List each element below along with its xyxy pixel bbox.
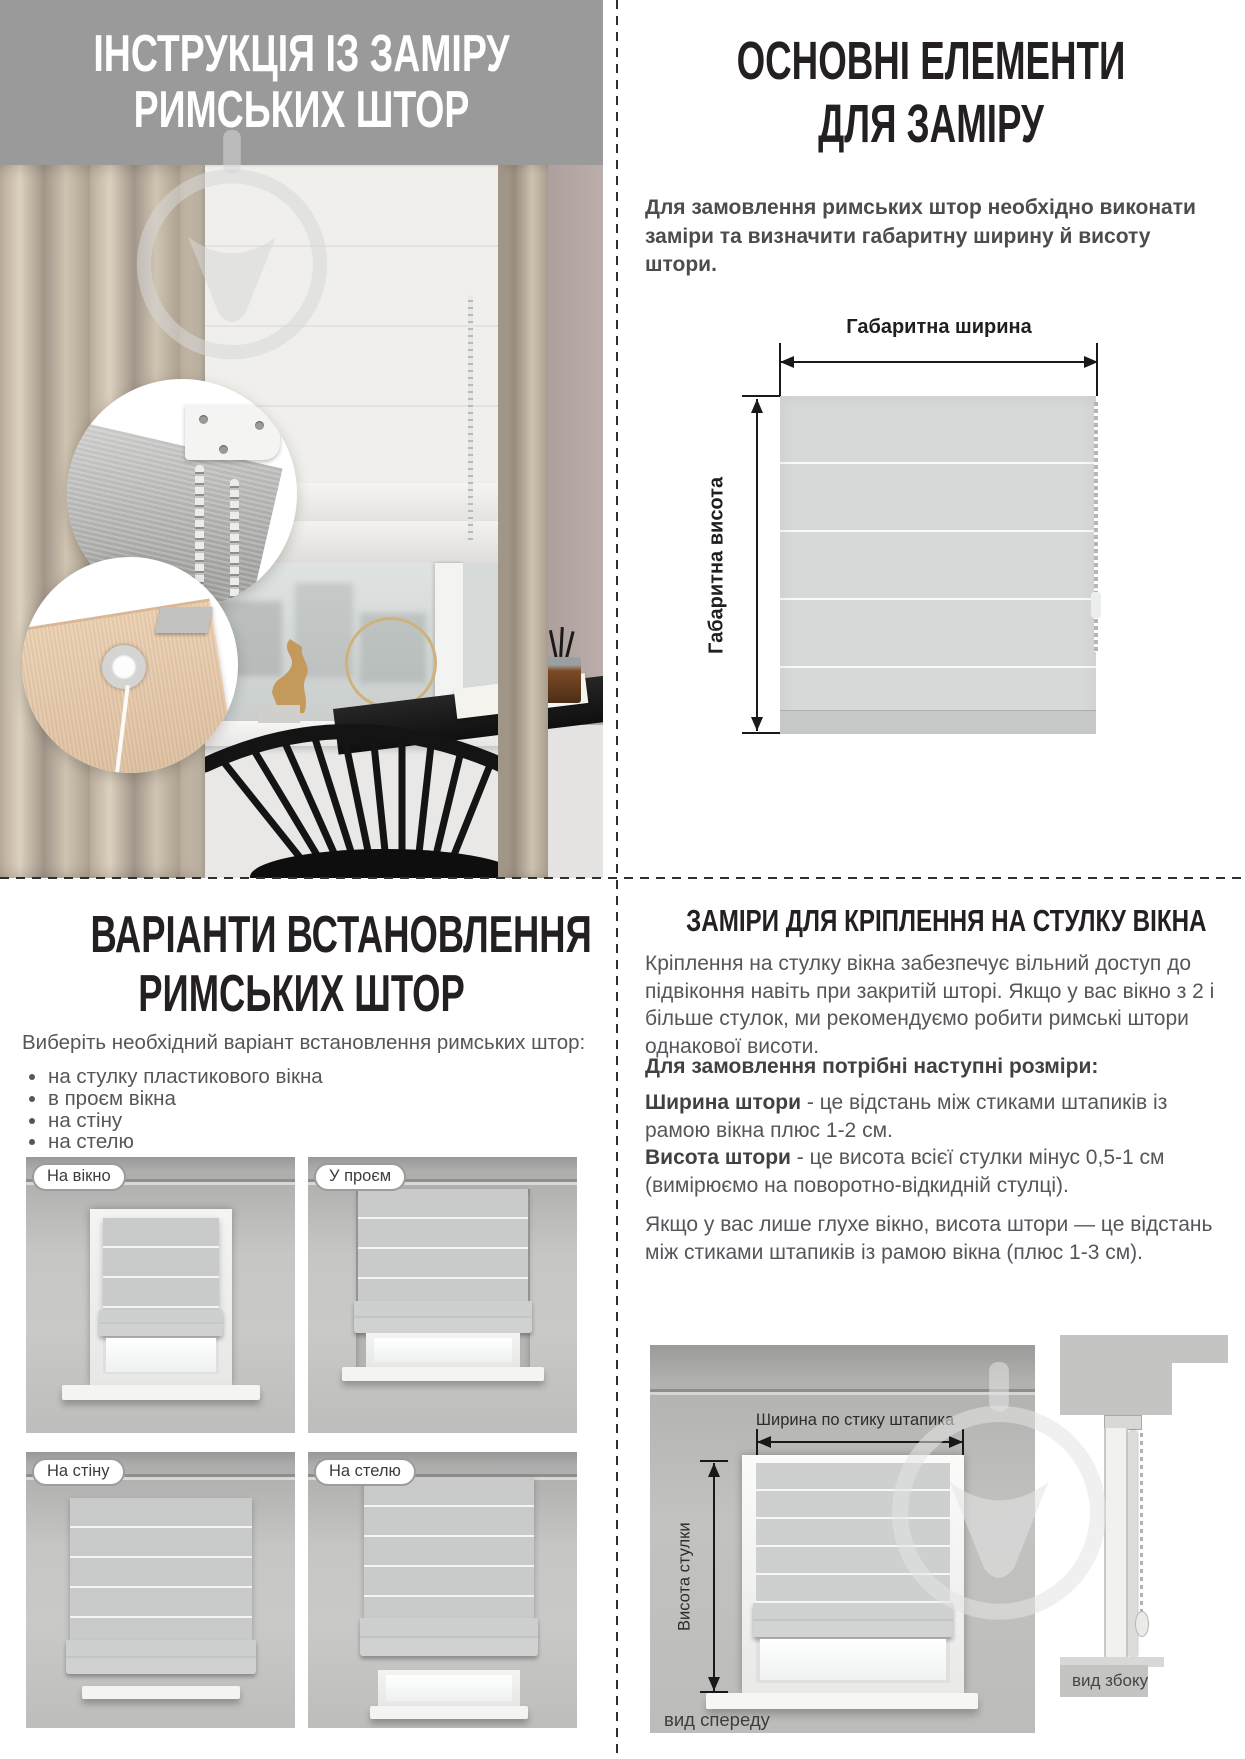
mount-paragraph: Кріплення на стулку вікна забезпечує віл… [645,950,1223,1060]
decor-sculpture [262,637,318,713]
install-option: на стелю [48,1131,588,1153]
glass [106,1338,216,1372]
window-sill [82,1686,240,1699]
height-definition: Висота штори - це висота всієї стулки мі… [645,1144,1223,1199]
section-heading: ОСНОВНІ ЕЛЕМЕНТИ ДЛЯ ЗАМІРУ [617,30,1245,156]
variant-label: На стіну [32,1458,125,1486]
inset-grommet-photo [22,557,238,773]
decor-ring [345,617,437,709]
intro-paragraph: Для замовлення римських штор необхідно в… [645,194,1221,280]
roman-blind [364,1477,534,1618]
horizontal-dashed-divider [0,877,1245,879]
vertical-dashed-divider [616,0,618,1759]
glass [374,1338,512,1362]
window-sill [342,1367,544,1381]
variant-card-wall: На стіну [26,1452,295,1728]
heading-line: РИМСЬКИХ ШТОР [90,965,512,1024]
section-heading: ЗАМІРИ ДЛЯ КРІПЛЕННЯ НА СТУЛКУ ВІКНА [617,903,1245,939]
glass [386,1675,512,1701]
variant-card-ceiling: На стелю [308,1452,577,1728]
brand-watermark-icon [868,1362,1130,1634]
height-term: Висота штори [645,1146,791,1169]
glass [760,1639,946,1680]
variant-label: На стелю [314,1458,416,1486]
roman-blinds-measuring-leaflet: ІНСТРУКЦІЯ ІЗ ЗАМІРУ РИМСЬКИХ ШТОР [0,0,1245,1759]
chain-weight [1135,1611,1149,1637]
window-frame [366,1333,520,1367]
roman-blind [70,1498,252,1640]
variant-card-window: На вікно [26,1157,295,1433]
sash-height-label: Висота стулки [674,1463,696,1691]
bead-chain [230,479,239,607]
window-sill [370,1706,528,1719]
roman-blind [103,1218,219,1310]
pen-cup [545,657,581,703]
height-arrow [756,399,758,731]
variants-intro: Виберіть необхідний варіант встановлення… [22,1030,597,1055]
heading-line: ВАРІАНТИ ВСТАНОВЛЕННЯ [90,906,512,965]
install-option: на стулку пластикового вікна [48,1066,588,1088]
width-term: Ширина штори [645,1091,801,1114]
window-frame [90,1209,232,1385]
curtain [498,165,548,878]
side-view-caption: вид збоку [1072,1671,1148,1691]
variant-label: На вікно [32,1163,126,1191]
chair-silhouette [190,705,530,878]
sizes-title: Для замовлення потрібні наступні розміри… [645,1053,1223,1081]
heading-line: ЗАМІРИ ДЛЯ КРІПЛЕННЯ НА СТУЛКУ ВІКНА [686,903,1176,939]
blind-drawing [780,396,1096,734]
window-frame [378,1670,520,1706]
install-options-list: на стулку пластикового вікна в проєм вік… [28,1066,588,1153]
fixed-window-paragraph: Якщо у вас лише глухе вікно, висота штор… [645,1211,1223,1266]
page-title: ІНСТРУКЦІЯ ІЗ ЗАМІРУ РИМСЬКИХ ШТОР [0,0,603,138]
heading-line: ОСНОВНІ ЕЛЕМЕНТИ [717,30,1144,93]
overall-height-label: Габаритна висота [704,396,730,734]
install-option: на стіну [48,1110,588,1132]
variant-card-opening: У проєм [308,1157,577,1433]
sash-height-arrow [713,1463,715,1691]
blind-chain [1140,1433,1143,1629]
width-definition: Ширина штори - це відстань між стиками ш… [645,1089,1223,1144]
width-arrow [780,361,1098,363]
grommet-eyelet [102,645,146,689]
brand-watermark-icon [122,128,342,374]
page-title-line1: ІНСТРУКЦІЯ ІЗ ЗАМІРУ [84,26,518,82]
variant-label: У проєм [314,1163,406,1191]
mount-bracket [185,405,280,460]
window-sill [62,1385,260,1400]
window-sill [706,1693,978,1709]
section-heading: ВАРІАНТИ ВСТАНОВЛЕННЯ РИМСЬКИХ ШТОР [0,906,603,1024]
install-option: в проєм вікна [48,1088,588,1110]
overall-width-label: Габаритна ширина [781,316,1097,339]
front-view-caption: вид спереду [664,1709,770,1731]
heading-line: ДЛЯ ЗАМІРУ [717,93,1144,156]
wall-section [1172,1335,1228,1363]
blind-chain [468,295,473,545]
roman-blind [358,1189,528,1301]
mount-bracket [155,607,213,633]
